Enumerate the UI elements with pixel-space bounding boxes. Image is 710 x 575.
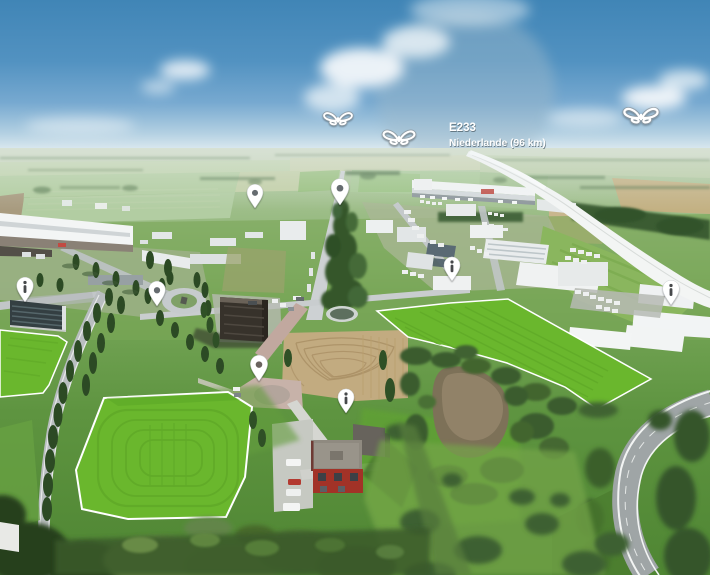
svg-text:E233: E233 — [449, 122, 476, 134]
svg-text:Niederlande (96 km): Niederlande (96 km) — [449, 138, 546, 149]
